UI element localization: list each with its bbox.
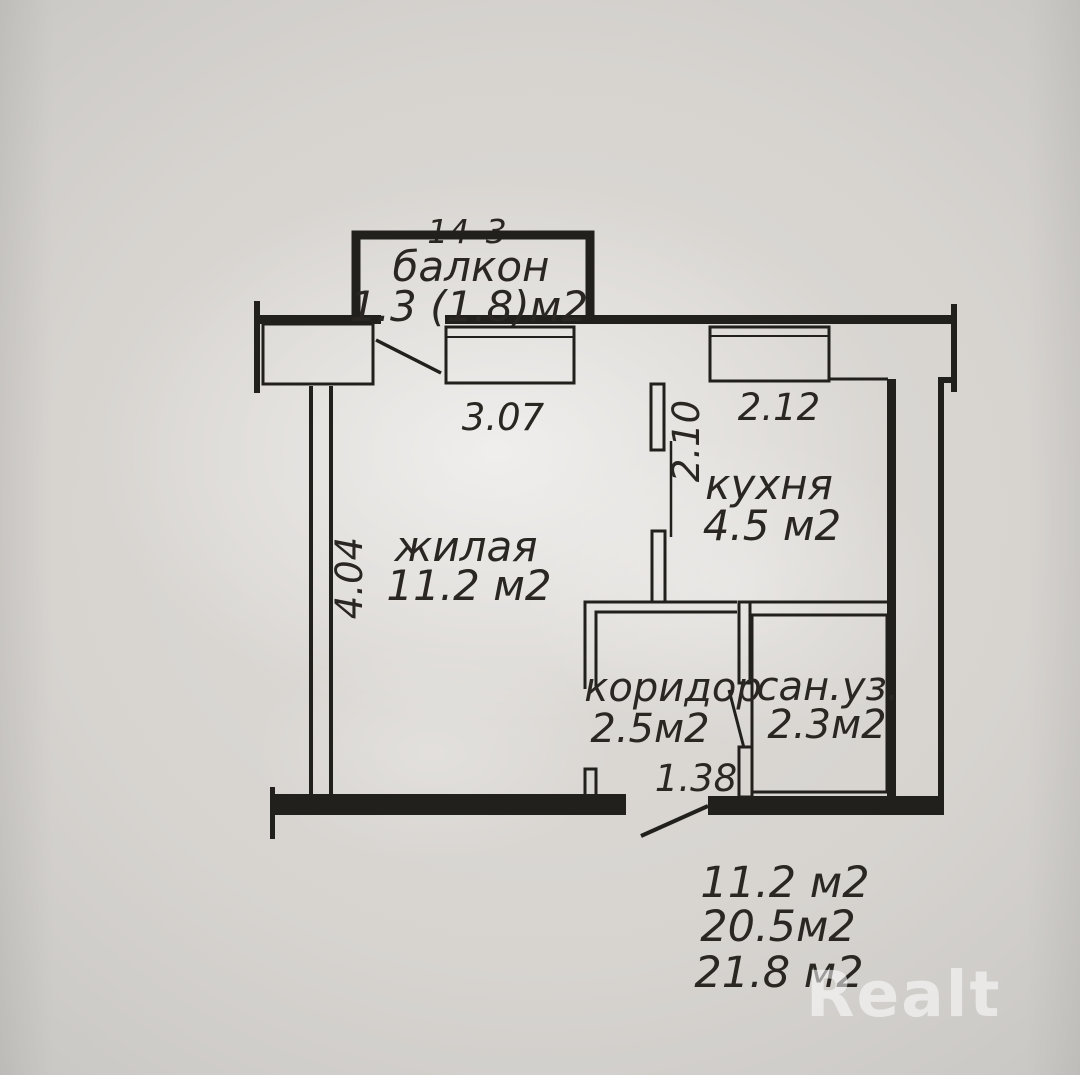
floorplan-photo: 14–3 <box>0 0 1080 1075</box>
entrance-door-swing <box>641 806 708 836</box>
total-living-area: 11.2 м2 <box>700 858 869 908</box>
realt-logo-watermark: Realt <box>806 958 1066 1031</box>
bathroom-left-wall-lower <box>739 747 752 797</box>
partition-kitchen-upper <box>651 384 664 450</box>
wall-outer-right <box>938 377 944 814</box>
corridor-door-jamb <box>585 769 596 796</box>
corridor-name-label: коридор <box>584 665 762 711</box>
window-living-room <box>446 327 574 383</box>
balcony-area-label: 1.3 (1.8)м2 <box>350 282 588 331</box>
dim-corridor-width: 1.38 <box>655 757 737 800</box>
floorplan-drawing: 14–3 <box>0 0 1080 1075</box>
corridor-area-label: 2.5м2 <box>590 706 709 752</box>
dim-kitchen-width: 2.12 <box>738 386 820 429</box>
wall-bottom-right <box>708 796 944 815</box>
wall-top-left-endcap <box>254 301 260 393</box>
wall-left-outer-line <box>309 386 313 796</box>
dim-living-width: 3.07 <box>462 396 545 439</box>
dim-living-depth: 4.04 <box>328 537 371 619</box>
kitchen-area-label: 4.5 м2 <box>703 501 842 550</box>
total-usable-area: 20.5м2 <box>700 902 856 952</box>
dim-kitchen-depth: 2.10 <box>665 400 708 482</box>
wall-bottom-left <box>274 794 626 815</box>
wall-kitchen-right <box>887 379 896 797</box>
partition-kitchen-lower <box>652 531 665 602</box>
bathroom-area-label: 2.3м2 <box>767 702 886 748</box>
living-area-label: 11.2 м2 <box>386 561 551 610</box>
window-left-block <box>263 324 373 384</box>
balcony-door-swing <box>376 340 441 373</box>
wall-bottom-left-endcap <box>270 787 275 839</box>
